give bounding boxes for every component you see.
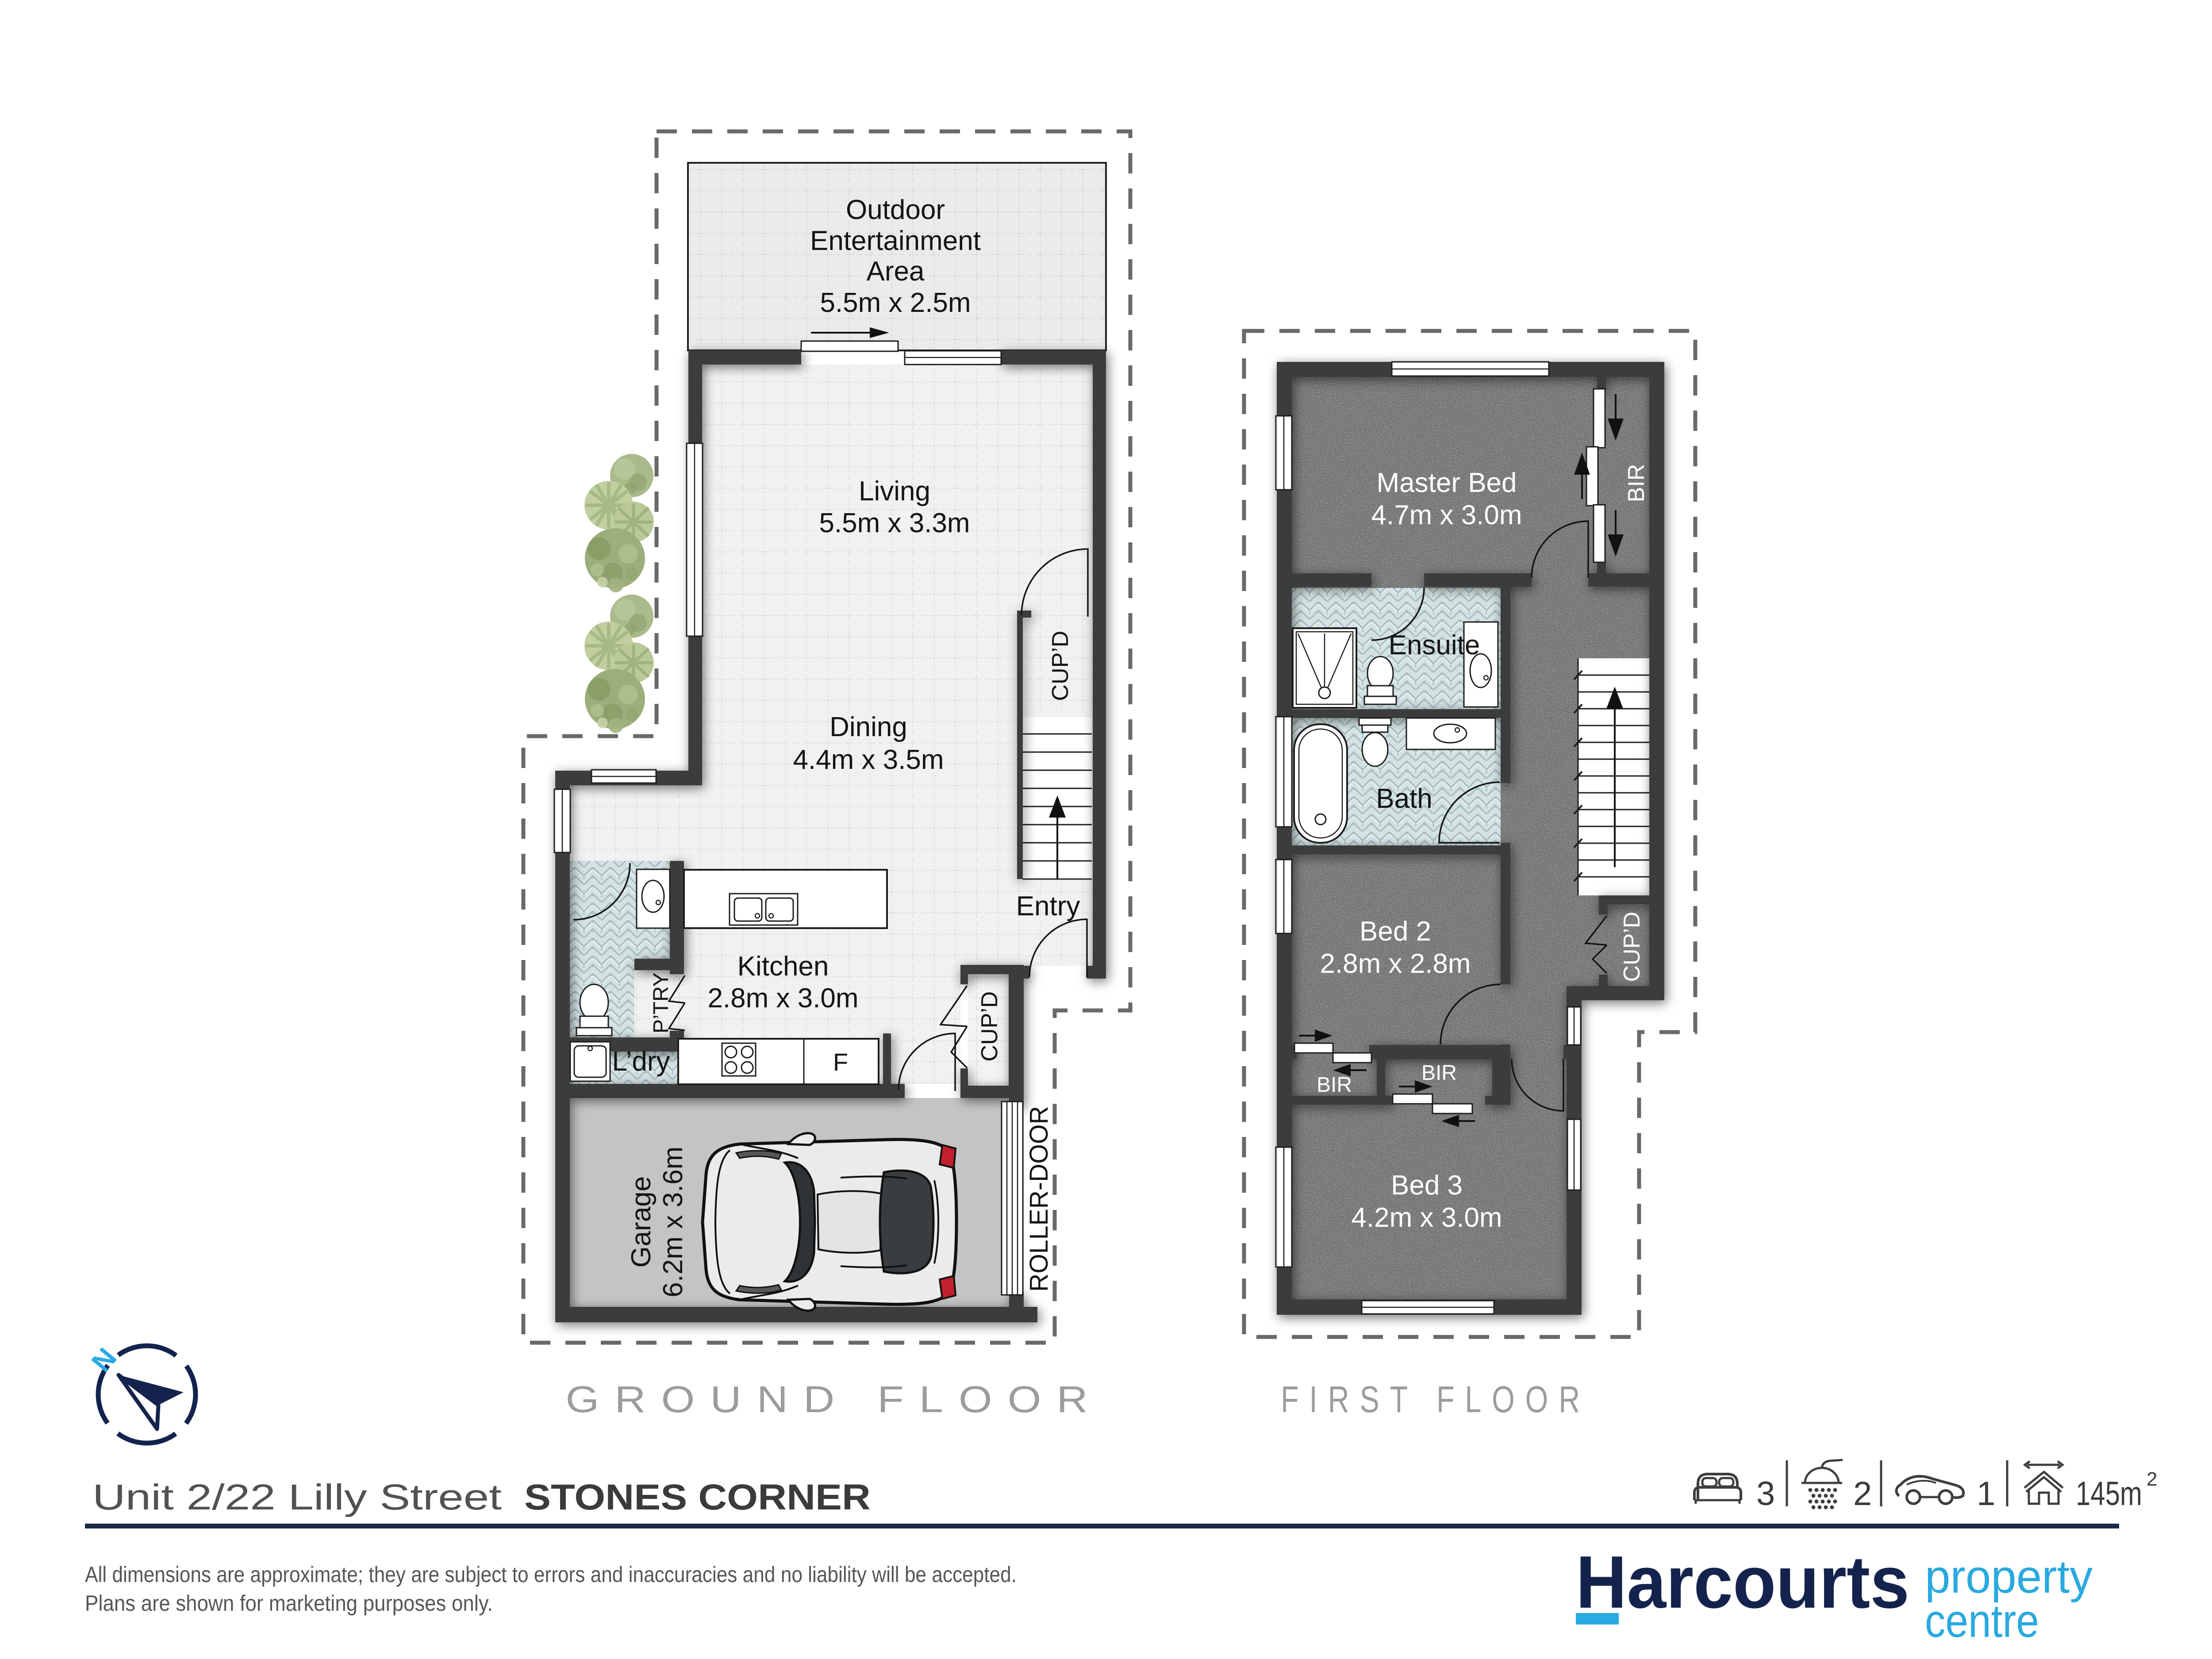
svg-text:BIR: BIR	[1317, 1073, 1352, 1097]
svg-text:3: 3	[1756, 1475, 1775, 1513]
svg-text:145m: 145m	[2076, 1475, 2142, 1513]
svg-text:STONES CORNER: STONES CORNER	[524, 1477, 871, 1517]
svg-text:Entry: Entry	[1016, 891, 1080, 922]
svg-text:Bed 3: Bed 3	[1391, 1170, 1463, 1201]
svg-text:BIR: BIR	[1624, 464, 1649, 503]
svg-text:P’TRY: P’TRY	[649, 972, 673, 1033]
svg-text:5.5m x 3.3m: 5.5m x 3.3m	[819, 508, 970, 538]
svg-text:2: 2	[2147, 1468, 2157, 1490]
svg-text:CUP’D: CUP’D	[1619, 912, 1645, 982]
svg-text:Unit 2/22 Lilly Street: Unit 2/22 Lilly Street	[92, 1477, 502, 1517]
svg-text:Harcourts: Harcourts	[1576, 1540, 1909, 1624]
svg-text:5.5m x 2.5m: 5.5m x 2.5m	[820, 288, 971, 318]
svg-text:Ensuite: Ensuite	[1389, 630, 1480, 661]
svg-text:All dimensions are approximate: All dimensions are approximate; they are…	[85, 1562, 1017, 1587]
svg-text:CUP’D: CUP’D	[1048, 631, 1073, 701]
svg-text:GROUND FLOOR: GROUND FLOOR	[566, 1379, 1103, 1420]
svg-text:FIRST FLOOR: FIRST FLOOR	[1281, 1379, 1590, 1420]
svg-text:4.4m x 3.5m: 4.4m x 3.5m	[793, 745, 944, 775]
svg-text:Master Bed: Master Bed	[1376, 468, 1517, 498]
svg-text:Garage: Garage	[626, 1176, 657, 1268]
svg-text:CUP’D: CUP’D	[977, 991, 1002, 1062]
svg-text:centre: centre	[1925, 1595, 2039, 1647]
svg-text:F: F	[833, 1048, 848, 1076]
svg-text:L’dry: L’dry	[612, 1046, 670, 1077]
svg-text:BIR: BIR	[1421, 1061, 1457, 1085]
svg-text:4.2m x 3.0m: 4.2m x 3.0m	[1351, 1202, 1502, 1233]
svg-text:2.8m x 2.8m: 2.8m x 2.8m	[1320, 949, 1471, 979]
svg-text:1: 1	[1977, 1475, 1995, 1513]
svg-text:Entertainment: Entertainment	[810, 226, 981, 256]
svg-text:Outdoor: Outdoor	[846, 195, 945, 225]
svg-text:2: 2	[1853, 1475, 1872, 1513]
svg-text:Area: Area	[867, 256, 925, 287]
svg-text:Bath: Bath	[1376, 783, 1432, 814]
svg-text:ROLLER-DOOR: ROLLER-DOOR	[1025, 1106, 1053, 1292]
svg-text:Bed 2: Bed 2	[1359, 916, 1431, 947]
svg-text:Kitchen: Kitchen	[737, 951, 829, 982]
svg-text:Plans are shown for marketing: Plans are shown for marketing purposes o…	[85, 1591, 493, 1616]
svg-text:6.2m x 3.6m: 6.2m x 3.6m	[658, 1146, 688, 1297]
svg-text:Living: Living	[859, 476, 930, 507]
svg-text:4.7m x 3.0m: 4.7m x 3.0m	[1371, 500, 1522, 530]
svg-text:Dining: Dining	[829, 712, 907, 742]
svg-text:2.8m x 3.0m: 2.8m x 3.0m	[707, 983, 858, 1014]
